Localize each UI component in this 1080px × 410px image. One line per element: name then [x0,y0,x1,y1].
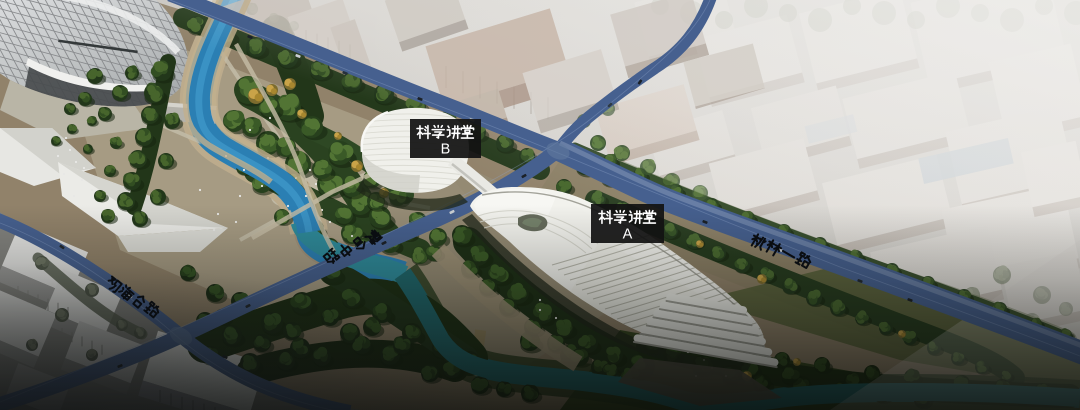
svg-text:B: B [441,142,451,158]
svg-text:A: A [623,227,633,243]
